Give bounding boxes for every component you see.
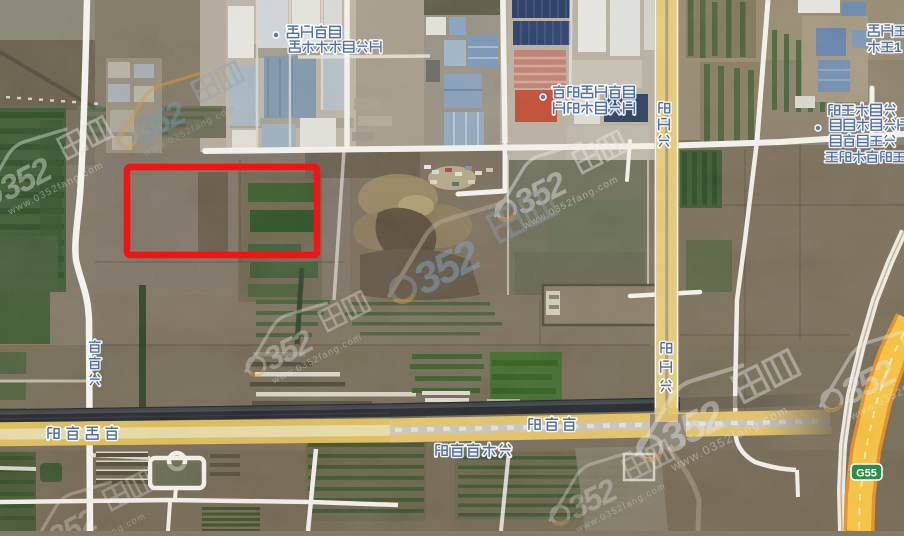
svg-text:G55: G55 [856,468,877,480]
svg-text:1: 1 [894,39,902,55]
